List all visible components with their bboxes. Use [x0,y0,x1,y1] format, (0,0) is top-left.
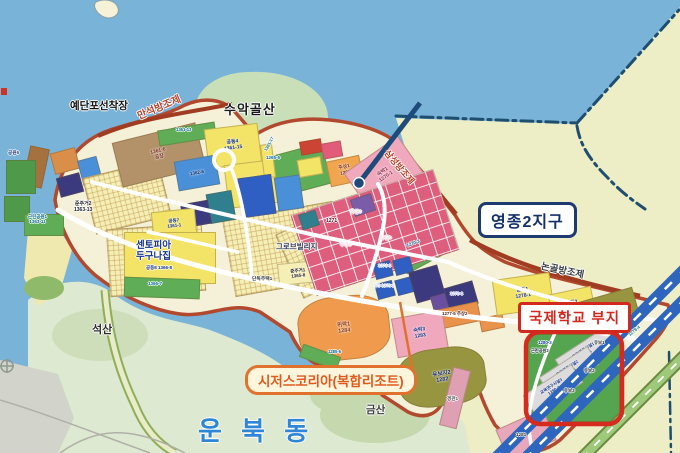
zoning-map: 1361-6공장공동41361-15공동51361-161362-6공동7136… [0,0,680,453]
map-label: 1285-6 [328,350,341,355]
map-label: 유보3 [564,389,575,394]
map-label: 주3 1275-2 [374,284,394,289]
map-label: 유보1 [594,341,605,346]
map-label: 운 북 동 [198,417,314,446]
school-site-label-box: 국제학교 부지 [518,302,631,333]
map-label: 1366-7 [148,281,162,286]
map-label: 1281 [516,432,526,437]
map-label: 근린공원1 1363-11 [28,214,47,224]
map-label: 1265-5 [266,155,280,160]
map-label: 석산 [92,324,112,336]
map-label: 1276-1 [450,292,463,297]
map-label: 수악골산 [224,103,276,118]
map-label: 1280-3 [538,341,552,346]
district-label-box: 영종2지구 [478,202,577,238]
map-label: 준주거2 1363-13 [74,202,92,213]
map-label: 삼성방조제 [382,148,416,186]
map-label: 1271 [326,219,337,225]
map-label: 경관1 [447,396,458,401]
map-label: 그로브빌리지 [276,243,317,251]
map-label: 센토피아 두구나집 [136,241,171,262]
map-label: 중심3 [350,210,362,215]
map-label: 논골방조제 [540,262,585,281]
map-label: 1277-5 주상2 [442,312,467,317]
map-label: 유보2 [584,369,595,374]
map-label: 1361-17 [264,136,275,152]
map-label: 1270-3 [406,239,421,248]
map-label: 주상5 [340,243,352,248]
map-label: 공원6 [8,150,19,155]
map-label: 만석방조제 [136,94,183,122]
map-label: 공동8 1366-8 [146,265,172,270]
map-label: 1274-1 [378,264,391,269]
map-label: 1361-13 [176,128,191,133]
map-label: 근린공원2 [531,349,549,354]
map-label: 예단포선착장 [70,101,128,113]
resort-label-box: 시저스코리아(복합리조트) [245,365,417,395]
map-label: 단독주택1 [252,277,272,282]
map-label: 중심5 [380,236,392,241]
map-label: 금산 [366,405,385,417]
